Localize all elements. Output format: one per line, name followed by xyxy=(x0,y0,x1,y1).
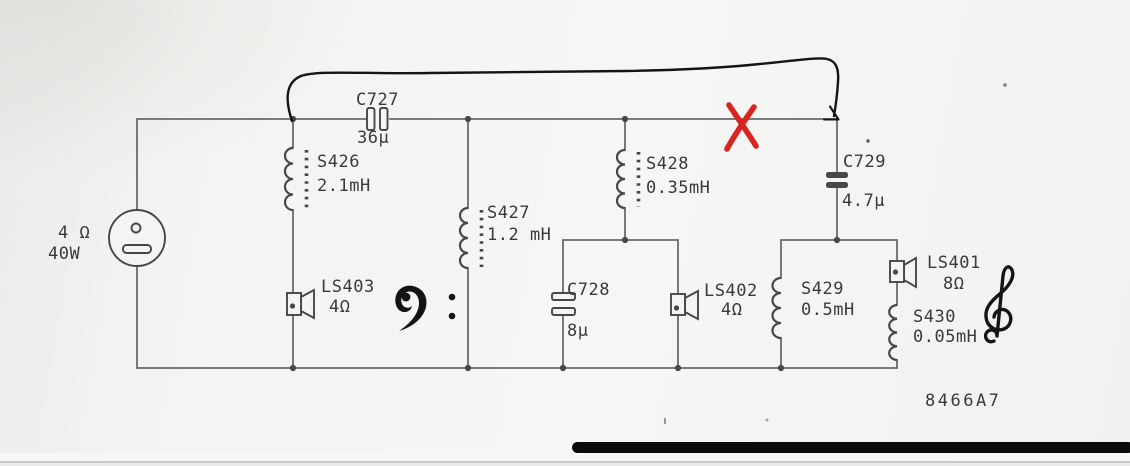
label-c727-value: 36µ xyxy=(357,129,389,148)
label-s430-value: 0.05mH xyxy=(913,328,977,347)
speaker-ls401-symbol xyxy=(890,258,916,287)
label-s429-name: S429 xyxy=(801,280,844,299)
scan-black-bar xyxy=(572,442,1130,453)
label-s427-value: 1.2 mH xyxy=(487,226,551,245)
label-s426-name: S426 xyxy=(317,153,360,172)
input-connector-symbol xyxy=(109,210,165,266)
drawing-number: 8466A7 xyxy=(925,392,1001,411)
inductor-s430-symbol xyxy=(889,305,897,360)
label-ls403-name: LS403 xyxy=(321,278,375,297)
inductor-s427-symbol xyxy=(460,208,482,268)
label-s428-value: 0.35mH xyxy=(646,179,710,198)
label-s428-name: S428 xyxy=(646,155,689,174)
label-c728-value: 8µ xyxy=(567,322,588,341)
label-s426-value: 2.1mH xyxy=(317,177,371,196)
label-ls401-value: 8Ω xyxy=(943,275,964,294)
treble-clef-icon xyxy=(986,267,1013,342)
capacitor-c729-symbol xyxy=(826,172,848,188)
inductor-s426-symbol xyxy=(285,148,307,210)
label-ls402-name: LS402 xyxy=(704,282,758,301)
red-x-mark xyxy=(727,105,756,149)
speaker-ls403-symbol xyxy=(287,290,314,318)
speaker-ls402-symbol xyxy=(671,291,698,319)
label-c729-value: 4.7µ xyxy=(842,192,885,211)
label-ls402-value: 4Ω xyxy=(721,301,742,320)
label-ls403-value: 4Ω xyxy=(329,298,350,317)
label-source-impedance: 4 Ω xyxy=(58,224,90,243)
label-source-power: 40W xyxy=(48,245,80,264)
scanned-schematic-page: 4 Ω 40W C727 36µ S426 2.1mH S427 1.2 mH … xyxy=(0,0,1130,466)
label-c727-name: C727 xyxy=(356,91,399,110)
inductor-s429-symbol xyxy=(773,278,782,338)
label-s430-name: S430 xyxy=(913,308,956,327)
label-c728-name: C728 xyxy=(567,281,610,300)
label-ls401-name: LS401 xyxy=(927,254,981,273)
junction-dots xyxy=(290,116,840,371)
label-s429-value: 0.5mH xyxy=(801,301,855,320)
inductor-s428-symbol xyxy=(617,150,639,208)
label-s427-name: S427 xyxy=(487,204,530,223)
bass-clef-icon xyxy=(395,286,455,331)
scan-bottom-edge xyxy=(0,453,1130,466)
label-c729-name: C729 xyxy=(843,153,886,172)
capacitor-c727-symbol xyxy=(367,108,388,130)
